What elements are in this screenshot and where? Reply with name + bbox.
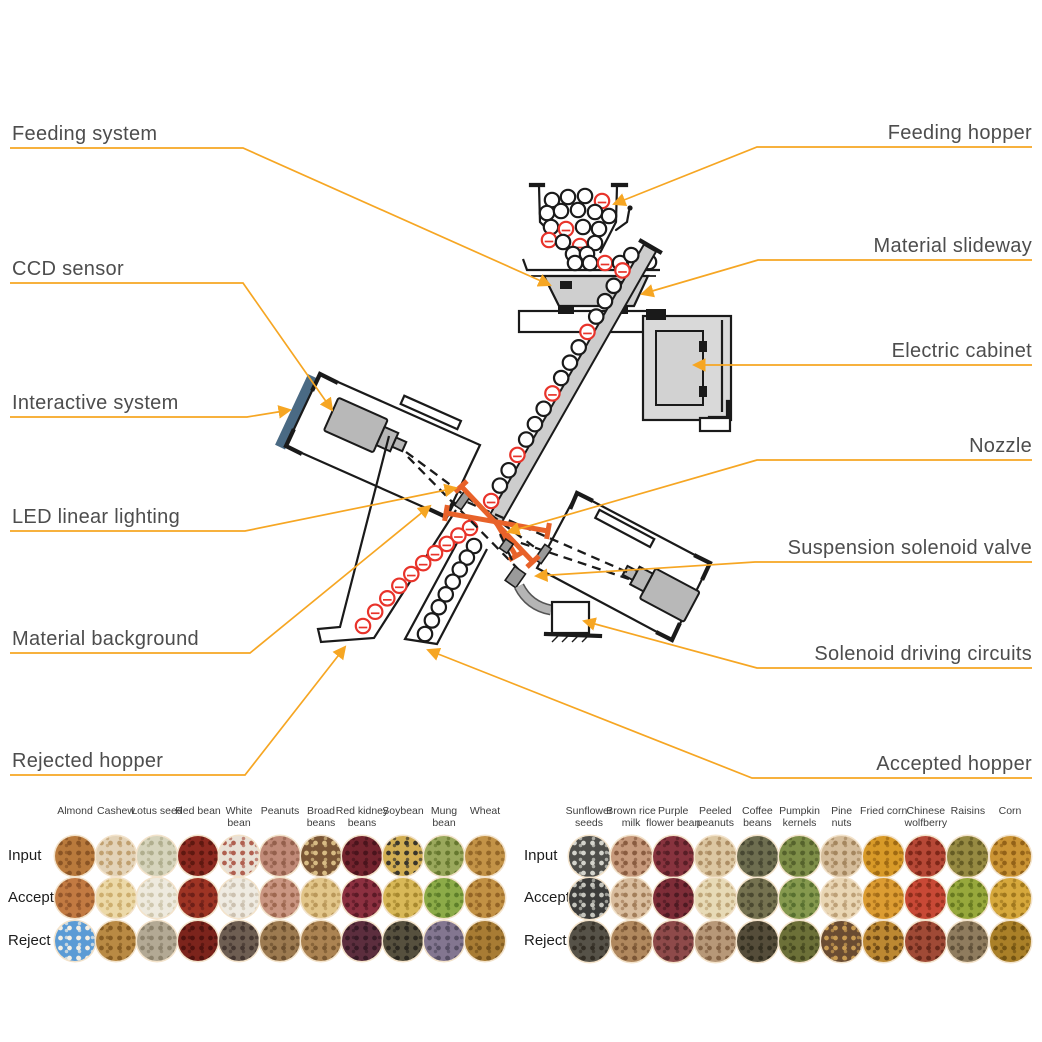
seed-image [821,836,862,877]
column-header: Wheat [450,806,520,818]
seed-image [779,921,820,962]
seed-image [219,921,259,961]
seed-image [260,878,300,918]
seed-image [695,878,736,919]
seed-image [779,836,820,877]
seed-image [424,921,464,961]
seed-image [947,921,988,962]
seed-image [653,836,694,877]
seed-image [383,836,423,876]
seed-image [301,921,341,961]
seed-image [178,836,218,876]
seed-image [611,878,652,919]
seed-image [424,878,464,918]
seed-image [424,836,464,876]
seed-image [737,921,778,962]
seed-image [779,878,820,919]
seed-image [465,836,505,876]
row-label: Input [524,847,557,864]
seed-image [695,921,736,962]
seed-image [96,836,136,876]
seed-image [990,921,1031,962]
seed-image [137,878,177,918]
seed-image [55,836,95,876]
seed-image [178,878,218,918]
seed-image [219,878,259,918]
seed-image [990,878,1031,919]
seed-image [465,921,505,961]
row-label: Accept [524,889,570,906]
seed-image [569,878,610,919]
column-header: Corn [975,806,1042,818]
seed-image [905,836,946,877]
sample-tables: AlmondCashewLotus seedRed beanWhite bean… [0,0,1042,1042]
seed-image [342,878,382,918]
seed-image [947,878,988,919]
seed-image [905,921,946,962]
seed-image [301,836,341,876]
seed-image [219,836,259,876]
seed-image [55,878,95,918]
seed-image [569,836,610,877]
seed-image [821,921,862,962]
seed-image [863,836,904,877]
seed-image [905,878,946,919]
seed-image [137,921,177,961]
seed-image [342,836,382,876]
seed-image [611,836,652,877]
row-label: Accept [8,889,54,906]
seed-image [695,836,736,877]
seed-image [260,921,300,961]
seed-image [383,878,423,918]
seed-image [260,836,300,876]
seed-image [137,836,177,876]
seed-image [465,878,505,918]
seed-image [611,921,652,962]
seed-image [383,921,423,961]
seed-image [653,878,694,919]
seed-image [178,921,218,961]
seed-image [863,878,904,919]
seed-image [342,921,382,961]
seed-image [96,921,136,961]
seed-image [947,836,988,877]
row-label: Input [8,847,41,864]
seed-image [737,878,778,919]
seed-image [737,836,778,877]
row-label: Reject [8,932,51,949]
seed-image [569,921,610,962]
seed-image [96,878,136,918]
row-label: Reject [524,932,567,949]
seed-image [653,921,694,962]
seed-image [863,921,904,962]
seed-image [55,921,95,961]
seed-image [990,836,1031,877]
seed-image [821,878,862,919]
seed-image [301,878,341,918]
